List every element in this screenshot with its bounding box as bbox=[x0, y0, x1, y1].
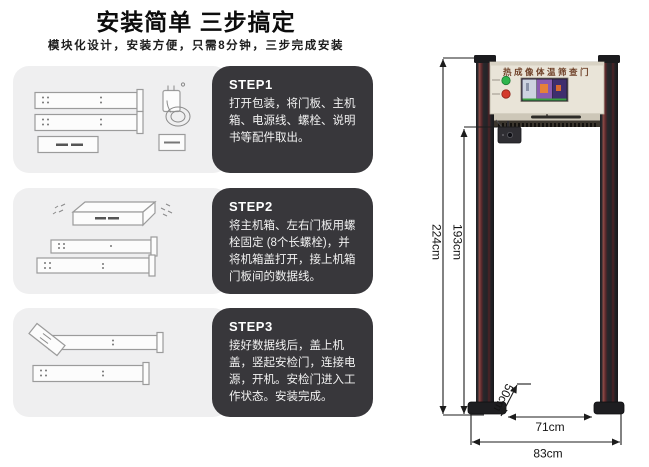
led-red-icon bbox=[502, 90, 510, 98]
door-foot-right bbox=[594, 402, 624, 414]
step3-panel: STEP3 接好数据线后，盖上机盖，竖起安检门，连接电源，开机。安检门进入工作状… bbox=[212, 308, 373, 417]
door-diagram: 热成像体温筛查门 bbox=[428, 28, 649, 467]
dim-overall-width-label: 83cm bbox=[533, 447, 562, 461]
speaker-slot bbox=[531, 116, 581, 119]
step2-illustration bbox=[13, 188, 229, 294]
page-subtitle: 模块化设计，安装方便，只需8分钟，三步完成安装 bbox=[0, 37, 392, 53]
dim-overall-height-label: 224cm bbox=[430, 224, 444, 260]
dim-inner-width-label: 71cm bbox=[535, 420, 564, 434]
door-title: 热成像体温筛查门 bbox=[503, 67, 591, 77]
step-card-1: STEP1 打开包装，将门板、主机箱、电源线、螺栓、说明书等配件取出。 bbox=[13, 66, 373, 173]
step-card-3: STEP3 接好数据线后，盖上机盖，竖起安检门，连接电源，开机。安检门进入工作状… bbox=[13, 308, 373, 417]
door-header-top-edge bbox=[490, 62, 604, 66]
assembly-drawing-icon bbox=[13, 188, 229, 294]
page: 安装简单 三步搞定 模块化设计，安装方便，只需8分钟，三步完成安装 bbox=[0, 0, 649, 467]
step1-illustration bbox=[13, 66, 229, 173]
step1-panel: STEP1 打开包装，将门板、主机箱、电源线、螺栓、说明书等配件取出。 bbox=[212, 66, 373, 173]
step3-illustration bbox=[13, 308, 229, 417]
step-card-2: STEP2 将主机箱、左右门板用螺栓固定 (8个长螺栓)，并将机箱盖打开，接上机… bbox=[13, 188, 373, 294]
dimension-inner-width: 71cm bbox=[508, 417, 592, 434]
finishing-drawing-icon bbox=[13, 308, 229, 417]
dim-base-depth-label: 50cm bbox=[491, 382, 517, 415]
dim-inner-height-label: 193cm bbox=[451, 224, 465, 260]
step-label: STEP1 bbox=[229, 77, 361, 92]
step-label: STEP3 bbox=[229, 319, 361, 334]
step-text: 接好数据线后，盖上机盖，竖起安检门，连接电源，开机。安检门进入工作状态。安装完成… bbox=[229, 338, 361, 406]
step2-panel: STEP2 将主机箱、左右门板用螺栓固定 (8个长螺栓)，并将机箱盖打开，接上机… bbox=[212, 188, 373, 294]
thermal-screen bbox=[521, 78, 568, 102]
step-text: 打开包装，将门板、主机箱、电源线、螺栓、说明书等配件取出。 bbox=[229, 96, 361, 147]
unpacking-drawing-icon bbox=[13, 66, 229, 173]
led-green-icon bbox=[502, 76, 510, 84]
page-title: 安装简单 三步搞定 bbox=[0, 3, 392, 37]
step-label: STEP2 bbox=[229, 199, 361, 214]
step-text: 将主机箱、左右门板用螺栓固定 (8个长螺栓)，并将机箱盖打开，接上机箱门板间的数… bbox=[229, 218, 361, 286]
